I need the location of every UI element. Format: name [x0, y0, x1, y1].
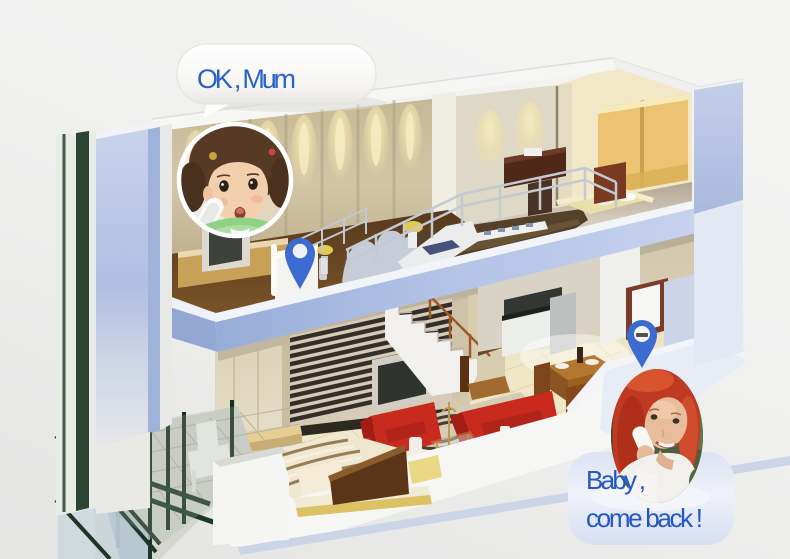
svg-text:come back !: come back ! — [586, 503, 703, 533]
svg-text:Baby ,: Baby , — [586, 465, 646, 495]
svg-text:OK , Mum: OK , Mum — [197, 64, 296, 94]
